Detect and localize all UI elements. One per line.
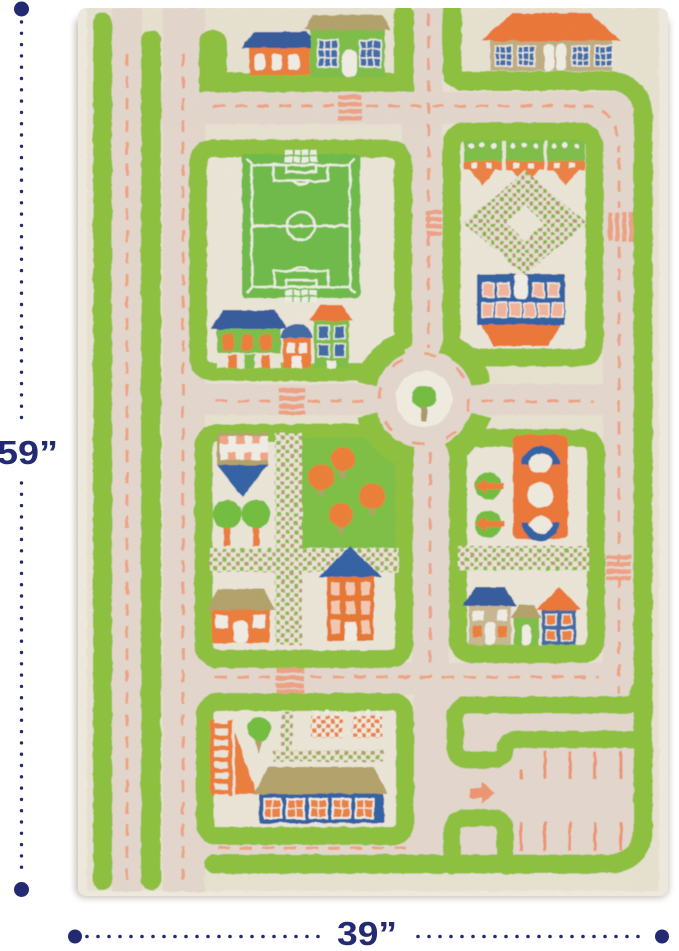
svg-text:39”: 39” — [337, 915, 397, 951]
svg-text:59”: 59” — [0, 434, 58, 471]
